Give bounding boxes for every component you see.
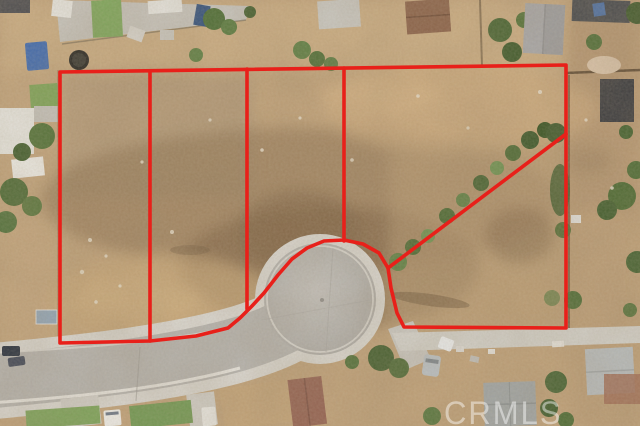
aerial-scene — [0, 0, 640, 426]
listing-photo: CRMLS — [0, 0, 640, 426]
